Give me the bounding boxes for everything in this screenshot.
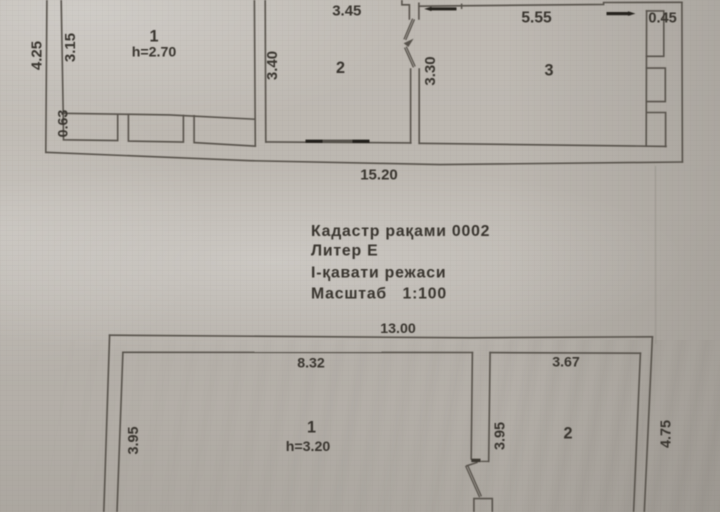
- svg-text:3.45: 3.45: [332, 2, 361, 19]
- svg-text:4.75: 4.75: [659, 420, 675, 448]
- svg-text:Литер Е: Литер Е: [311, 243, 379, 260]
- svg-text:8.32: 8.32: [297, 356, 325, 372]
- svg-text:3.30: 3.30: [422, 56, 439, 85]
- svg-text:3.15: 3.15: [62, 33, 79, 62]
- svg-text:Кадастр рақами 0002: Кадастр рақами 0002: [311, 223, 490, 240]
- svg-text:15.20: 15.20: [360, 167, 398, 184]
- svg-text:2: 2: [336, 59, 345, 77]
- svg-text:1: 1: [149, 28, 158, 46]
- svg-text:0.63: 0.63: [55, 110, 71, 138]
- svg-text:13.00: 13.00: [380, 321, 416, 337]
- svg-text:1: 1: [307, 419, 316, 437]
- svg-text:h=3.20: h=3.20: [286, 439, 331, 455]
- svg-text:3.95: 3.95: [492, 422, 508, 450]
- svg-text:3.95: 3.95: [126, 426, 142, 454]
- svg-text:Масштаб 1:100: Масштаб 1:100: [311, 285, 447, 302]
- svg-text:4.25: 4.25: [29, 41, 46, 70]
- svg-text:3: 3: [544, 62, 553, 80]
- svg-text:3.40: 3.40: [264, 51, 281, 80]
- svg-text:0.45: 0.45: [648, 10, 676, 26]
- svg-text:І-қавати режаси: І-қавати режаси: [311, 265, 446, 282]
- svg-text:5.55: 5.55: [521, 10, 552, 27]
- svg-text:2: 2: [563, 425, 572, 443]
- svg-text:h=2.70: h=2.70: [132, 45, 177, 61]
- svg-text:3.67: 3.67: [552, 355, 580, 371]
